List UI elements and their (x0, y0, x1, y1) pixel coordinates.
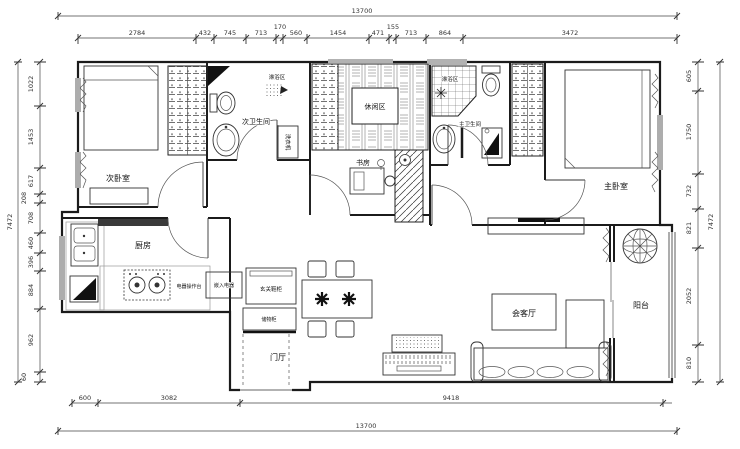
floor-plan-page: 13700 2784 432 745 713 170 560 1454 471 … (0, 0, 740, 449)
plant-icon (315, 292, 329, 306)
label-storage-cabinet: 储物柜 (261, 316, 276, 323)
dim-label: 810 (685, 357, 693, 369)
dim-label: 605 (685, 70, 693, 82)
dim-label: 864 (439, 29, 451, 37)
window-left-lower (75, 152, 81, 188)
window-top-master-bath (427, 59, 467, 65)
window-kitchen (59, 236, 65, 300)
floor-plan-canvas: 13700 2784 432 745 713 170 560 1454 471 … (0, 0, 740, 449)
label-study: 书房 (356, 158, 370, 167)
label-secondary-bedroom: 次卧室 (106, 173, 130, 183)
dim-label: 713 (405, 29, 417, 37)
dim-label: 460 (27, 237, 35, 249)
dim-label: 1453 (27, 129, 35, 146)
dim-label: 732 (685, 185, 693, 197)
label-balcony: 阳台 (633, 300, 649, 310)
dim-label: 1750 (685, 124, 693, 141)
label-master-bedroom: 主卧室 (604, 181, 628, 191)
dim-label: 2052 (685, 288, 693, 305)
label-entry-hall: 门厅 (270, 352, 286, 362)
label-entry-cabinet: 玄关鞋柜 (260, 285, 283, 293)
bookshelf (312, 64, 338, 150)
balcony-furniture (623, 229, 657, 263)
label-built-in-appliance: 嵌入电器 (214, 282, 234, 289)
label-shower-area-2: 淋浴区 (442, 75, 459, 83)
window-left-top (75, 78, 81, 112)
upper-cabinet (98, 219, 168, 226)
dim-label: 962 (27, 334, 35, 346)
dim-label: 432 (199, 29, 211, 37)
dim-label: 3472 (562, 29, 579, 37)
dim-label: 3082 (161, 394, 178, 402)
window-balcony (668, 232, 676, 378)
dim-label: 560 (290, 29, 302, 37)
wall-tv (518, 218, 560, 222)
dim-label: 60 (20, 373, 28, 381)
dim-label: 7472 (707, 214, 715, 231)
dim-label: 600 (79, 394, 91, 402)
dim-label: 708 (27, 212, 35, 224)
label-washing-machine: 洗衣机 (284, 134, 292, 151)
dim-label: 208 (20, 192, 28, 204)
dim-label: 2784 (129, 29, 146, 37)
dim-label: 13700 (352, 7, 373, 15)
dim-label: 13700 (356, 422, 377, 430)
label-kitchen: 厨房 (135, 240, 151, 250)
plant-icon (342, 292, 356, 306)
label-appliance-counter: 电器操作台 (176, 283, 201, 290)
dim-label: 713 (255, 29, 267, 37)
dim-label: 821 (685, 222, 693, 234)
dim-label: 617 (27, 175, 35, 187)
dim-label: 471 (372, 29, 384, 37)
window-master-bedroom (657, 115, 663, 170)
dim-label: 155 (387, 23, 399, 31)
label-leisure-area: 休闲区 (365, 102, 386, 111)
dim-label: 396 (27, 256, 35, 268)
dim-label: 745 (224, 29, 236, 37)
dim-label: 1454 (330, 29, 347, 37)
label-master-bathroom: 主卫生间 (459, 120, 481, 128)
dim-label: 884 (27, 284, 35, 296)
dim-label: 7472 (6, 214, 14, 231)
master-closet (512, 64, 543, 156)
label-secondary-bathroom: 次卫生间 (242, 117, 270, 126)
dim-label: 170 (274, 23, 286, 31)
label-shower-area-1: 淋浴区 (269, 73, 286, 81)
dim-label: 1022 (27, 76, 35, 93)
label-living-room: 会客厅 (512, 308, 536, 318)
dim-label: 9418 (443, 394, 460, 402)
